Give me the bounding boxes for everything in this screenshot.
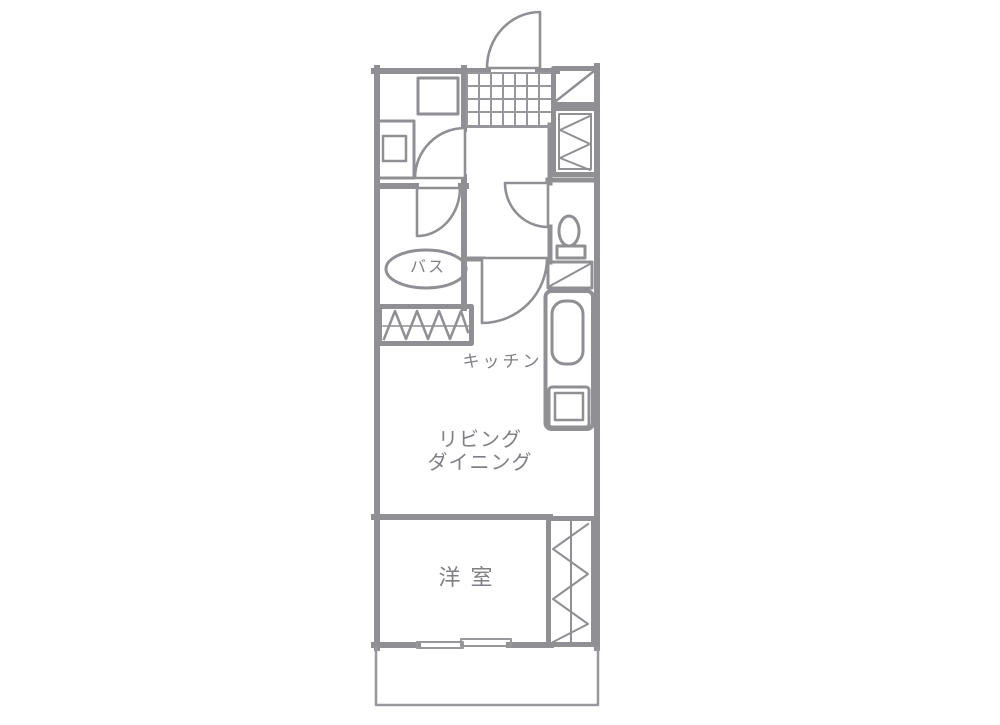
entry-closet-diagonal <box>556 71 594 101</box>
bath-label: バス <box>398 258 458 276</box>
bedroom-window <box>417 639 511 648</box>
balcony-outline <box>376 648 598 705</box>
bath-door-arc <box>417 188 460 236</box>
ldk-door-arc <box>482 258 547 323</box>
living-dining-label: リビング ダイニング <box>420 428 540 474</box>
genkan-tile-lines <box>467 73 552 126</box>
window-sash-left <box>417 642 463 648</box>
toilet-tank <box>557 246 585 258</box>
toilet-door-arc <box>505 183 548 227</box>
shoe-storage-zigzag <box>560 116 590 170</box>
washing-machine <box>418 78 458 114</box>
living-label-line1: リビング <box>420 428 540 451</box>
toilet-room <box>557 216 585 258</box>
washbasin-diagonal <box>550 264 590 286</box>
western-room-label: 洋室 <box>428 566 513 591</box>
hall-storage <box>380 307 472 344</box>
toilet-bowl <box>559 216 579 246</box>
washroom-door-arc <box>415 128 465 178</box>
floor-plan: バス キッチン リビング ダイニング 洋室 <box>0 0 1000 725</box>
kitchen-label: キッチン <box>455 353 550 373</box>
stove-inner <box>555 393 583 420</box>
balcony <box>376 648 598 705</box>
bedroom-closet <box>549 519 594 645</box>
hall-storage-zigzag <box>384 311 468 339</box>
genkan-tile-grid <box>466 73 552 127</box>
living-label-line2: ダイニング <box>420 451 540 474</box>
shoe-storage <box>554 109 597 175</box>
vanity-sink-bowl <box>383 136 406 161</box>
window-sash-right <box>461 639 511 646</box>
kitchen-sink <box>552 301 583 364</box>
kitchen-counter <box>546 291 594 429</box>
washbasin-unit <box>548 262 592 288</box>
entrance-door-arc <box>487 12 540 68</box>
